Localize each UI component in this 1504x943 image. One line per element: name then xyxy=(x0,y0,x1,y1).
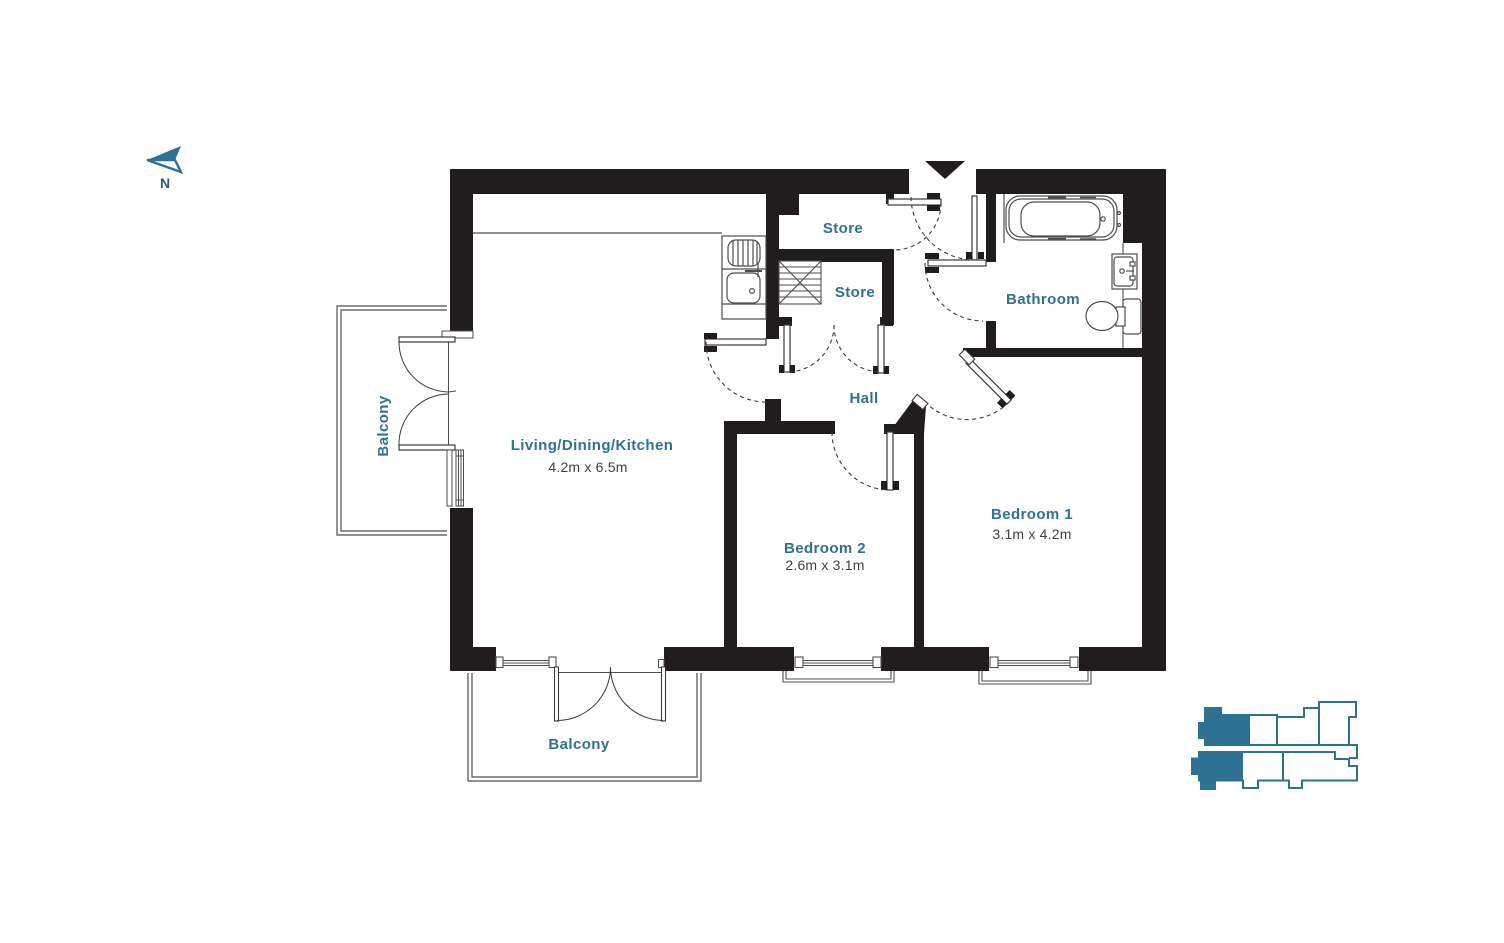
svg-text:Store: Store xyxy=(823,220,863,237)
svg-text:N: N xyxy=(160,175,170,191)
svg-text:2.6m x 3.1m: 2.6m x 3.1m xyxy=(785,557,864,573)
svg-text:Store: Store xyxy=(835,284,875,301)
svg-text:Bathroom: Bathroom xyxy=(1006,291,1080,308)
svg-text:Living/Dining/Kitchen: Living/Dining/Kitchen xyxy=(511,437,674,454)
svg-text:Bedroom 1: Bedroom 1 xyxy=(991,506,1073,523)
svg-text:Bedroom 2: Bedroom 2 xyxy=(784,540,866,557)
svg-text:4.2m x 6.5m: 4.2m x 6.5m xyxy=(548,459,627,475)
svg-text:Balcony: Balcony xyxy=(375,395,392,456)
svg-text:Hall: Hall xyxy=(849,390,878,407)
svg-text:3.1m x 4.2m: 3.1m x 4.2m xyxy=(992,526,1071,542)
svg-text:Balcony: Balcony xyxy=(548,736,609,753)
